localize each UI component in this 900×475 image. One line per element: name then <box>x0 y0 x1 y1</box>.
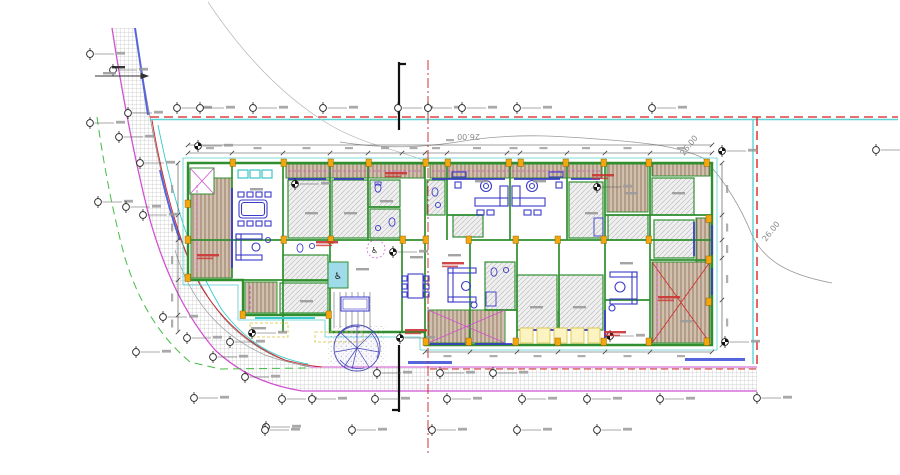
marker-circle <box>174 105 181 112</box>
bath-4 <box>485 262 515 310</box>
marker-elevation-label <box>519 371 528 374</box>
dimension-text <box>171 320 173 328</box>
dimension-text <box>446 139 454 141</box>
marker-elevation-label <box>239 355 248 358</box>
marker-circle <box>279 396 286 403</box>
marker-elevation-label <box>543 106 552 109</box>
bedroom-8 <box>283 255 328 281</box>
label-bar <box>385 172 407 174</box>
survey-marker <box>197 102 235 114</box>
room-label <box>625 192 638 194</box>
marker-circle <box>657 396 664 403</box>
marker-elevation-label <box>224 144 233 147</box>
room-label <box>672 192 685 194</box>
label-bar <box>448 254 461 256</box>
room-label <box>103 72 116 74</box>
marker-circle <box>227 339 234 346</box>
room-label <box>250 188 263 190</box>
bedroom-1 <box>288 180 330 238</box>
label-bar-2 <box>604 335 620 337</box>
room-label <box>475 180 488 182</box>
label-bar-2 <box>658 300 674 302</box>
marker-elevation-label <box>473 397 482 400</box>
label-bar <box>305 212 318 214</box>
marker-elevation-label <box>401 397 410 400</box>
dimension-text <box>171 224 173 232</box>
room-label <box>305 212 318 214</box>
bedroom-10 <box>559 275 603 330</box>
marker-elevation-label <box>403 371 412 374</box>
marker-elevation-label <box>169 213 178 216</box>
column <box>328 159 334 167</box>
label-bar <box>530 306 543 308</box>
veranda-northeast <box>607 164 648 212</box>
label-bar <box>300 300 313 302</box>
label-bar <box>658 296 680 298</box>
marker-elevation-label <box>678 106 687 109</box>
marker-elevation-label <box>426 336 435 339</box>
column <box>555 236 561 244</box>
site-plan-page: 26.0026.0026.00 <box>0 0 900 475</box>
column <box>423 236 429 244</box>
column <box>400 236 406 244</box>
label-bar <box>475 180 488 182</box>
survey-marker <box>514 102 552 114</box>
marker-circle <box>262 427 269 434</box>
marker-circle <box>250 105 257 112</box>
marker-circle <box>95 199 102 206</box>
label-bar <box>442 262 464 264</box>
bedroom-4 <box>652 178 694 215</box>
label-bar <box>344 212 357 214</box>
survey-marker <box>191 392 229 404</box>
dimension-text <box>171 185 173 193</box>
label-bar <box>625 192 638 194</box>
room-label <box>253 327 266 329</box>
dimension-text <box>726 224 728 232</box>
dimension-text <box>677 355 685 357</box>
dimension-text <box>410 147 418 149</box>
marker-circle <box>490 370 497 377</box>
marker-elevation-label <box>686 397 695 400</box>
survey-marker <box>87 117 125 129</box>
survey-marker <box>195 140 233 152</box>
column <box>704 338 710 346</box>
label-bar <box>672 192 685 194</box>
marker-circle <box>320 105 327 112</box>
room-label <box>448 254 461 256</box>
column <box>706 256 712 264</box>
column <box>706 298 712 306</box>
column <box>281 236 287 244</box>
column <box>506 159 512 167</box>
dimension-text <box>677 147 685 149</box>
survey-marker <box>873 144 900 156</box>
dimension-text <box>726 245 728 253</box>
column <box>601 236 607 244</box>
marker-elevation-label <box>636 334 645 337</box>
dimension-text <box>444 355 452 357</box>
marker-elevation-label <box>279 106 288 109</box>
column <box>466 236 472 244</box>
survey-marker <box>444 393 482 405</box>
marker-elevation-label <box>139 68 148 71</box>
dimension-text <box>171 256 173 264</box>
column <box>513 236 519 244</box>
marker-elevation-label <box>748 149 757 152</box>
dimension-text <box>303 147 311 149</box>
tree <box>328 325 386 371</box>
marker-circle <box>133 349 140 356</box>
dimension-text <box>726 319 728 327</box>
marker-elevation-label <box>278 331 287 334</box>
bath-1 <box>370 180 400 207</box>
marker-elevation-label <box>419 250 428 253</box>
survey-marker <box>754 392 792 404</box>
room-label <box>380 200 393 202</box>
marker-elevation-label <box>338 397 347 400</box>
marker-circle <box>519 396 526 403</box>
bath-3 <box>427 180 445 215</box>
survey-marker <box>320 102 358 114</box>
marker-elevation-label <box>154 111 163 114</box>
marker-elevation-label <box>162 350 171 353</box>
survey-marker <box>349 424 387 436</box>
label-bar <box>103 72 116 74</box>
dimension-text <box>540 147 548 149</box>
column <box>518 159 524 167</box>
marker-circle <box>197 105 204 112</box>
dimension-text <box>624 355 632 357</box>
survey-marker <box>519 393 557 405</box>
survey-marker <box>649 102 687 114</box>
label-bar <box>253 327 266 329</box>
column <box>326 311 332 319</box>
bath-5 <box>453 215 483 237</box>
marker-circle <box>137 160 144 167</box>
marker-elevation-label <box>116 121 125 124</box>
label-bar <box>604 331 626 333</box>
marker-circle <box>459 105 466 112</box>
marker-elevation-label <box>613 397 622 400</box>
room-label <box>410 256 423 258</box>
column <box>423 338 429 346</box>
label-bar <box>197 254 219 256</box>
bedroom-9 <box>517 275 557 330</box>
marker-elevation-label <box>321 182 330 185</box>
label-bar <box>316 241 338 243</box>
survey-marker <box>309 393 347 405</box>
label-bar-2 <box>442 266 458 268</box>
column <box>240 311 246 319</box>
room-label <box>112 66 125 68</box>
dimension-text <box>381 147 389 149</box>
marker-circle <box>594 427 601 434</box>
marker-elevation-label <box>116 52 125 55</box>
marker-circle <box>649 105 656 112</box>
marker-circle <box>210 354 217 361</box>
wheelchair-icon-2: ♿ <box>371 246 378 255</box>
veranda-top-b <box>430 164 602 178</box>
column <box>646 236 652 244</box>
marker-elevation-label <box>378 428 387 431</box>
marker-elevation-label <box>291 428 300 431</box>
column <box>185 200 191 208</box>
marker-elevation-label <box>166 161 175 164</box>
dimension-text <box>206 147 214 149</box>
survey-marker <box>429 424 467 436</box>
column <box>555 338 561 346</box>
marker-circle <box>395 105 402 112</box>
column <box>563 159 569 167</box>
marker-circle <box>87 120 94 127</box>
dimension-text <box>432 147 440 149</box>
marker-circle <box>160 314 167 321</box>
marker-circle <box>123 204 130 211</box>
column <box>513 338 519 346</box>
marker-circle <box>140 212 147 219</box>
marker-circle <box>514 427 521 434</box>
survey-marker <box>250 102 288 114</box>
survey-marker <box>425 102 463 114</box>
column <box>445 159 451 167</box>
column <box>706 215 712 223</box>
marker-circle <box>754 395 761 402</box>
marker-elevation-label <box>543 428 552 431</box>
room-label <box>585 212 598 214</box>
bedroom-6 <box>654 220 694 258</box>
label-bar <box>250 188 263 190</box>
dimension-text <box>624 147 632 149</box>
column <box>185 274 191 282</box>
column <box>185 236 191 244</box>
label-bar <box>405 329 427 331</box>
marker-circle <box>309 396 316 403</box>
marker-elevation-label <box>623 428 632 431</box>
column <box>646 338 652 346</box>
marker-elevation-label <box>226 106 235 109</box>
label-bar <box>410 256 423 258</box>
label-bar <box>592 174 614 176</box>
marker-elevation-label <box>548 397 557 400</box>
marker-elevation-label <box>751 340 760 343</box>
veranda-east-strip <box>652 164 710 176</box>
column <box>423 159 429 167</box>
marker-elevation-label <box>124 200 133 203</box>
marker-elevation-label <box>458 428 467 431</box>
column <box>230 159 236 167</box>
dimension-text <box>345 147 353 149</box>
dimension-text <box>578 355 586 357</box>
room-label <box>533 180 546 182</box>
bedroom-2 <box>332 180 368 238</box>
dimension-text <box>582 147 590 149</box>
marker-elevation-label <box>145 135 154 138</box>
label-bar-2 <box>405 333 421 335</box>
contour-elevation-label: 26.00 <box>457 132 480 141</box>
label-bar-2 <box>592 178 608 180</box>
marker-circle <box>374 370 381 377</box>
marker-circle <box>242 374 249 381</box>
room-label <box>344 212 357 214</box>
dimension-text <box>473 147 481 149</box>
survey-marker <box>719 145 757 157</box>
room-label <box>300 300 313 302</box>
room-label <box>573 306 586 308</box>
label-bar-2 <box>385 176 401 178</box>
column <box>646 159 652 167</box>
dimension-text <box>726 185 728 193</box>
room-label <box>680 320 693 322</box>
dimension-text <box>490 355 498 357</box>
survey-marker <box>722 336 760 348</box>
label-bar-2 <box>197 258 213 260</box>
marker-elevation-label <box>783 396 792 399</box>
dimension-text <box>726 275 728 283</box>
marker-elevation-label <box>488 106 497 109</box>
marker-circle <box>349 427 356 434</box>
marker-circle <box>191 395 198 402</box>
bedroom-5 <box>608 215 648 240</box>
dimension-text <box>254 147 262 149</box>
marker-elevation-label <box>152 205 161 208</box>
room-label <box>620 262 633 264</box>
marker-circle <box>125 110 132 117</box>
contour-2 <box>703 158 832 283</box>
marker-elevation-label <box>349 106 358 109</box>
marker-circle <box>372 396 379 403</box>
marker-circle <box>444 396 451 403</box>
survey-marker <box>657 393 695 405</box>
marker-circle <box>425 105 432 112</box>
marker-circle <box>116 134 123 141</box>
wheelchair-icon: ♿ <box>334 272 342 282</box>
marker-circle <box>584 396 591 403</box>
column <box>704 159 710 167</box>
marker-circle <box>429 427 436 434</box>
label-bar <box>380 200 393 202</box>
contour-elevation-label: 26.00 <box>678 134 699 158</box>
bath-2 <box>370 209 400 238</box>
marker-elevation-label <box>189 315 198 318</box>
marker-circle <box>437 370 444 377</box>
marker-elevation-label <box>623 185 632 188</box>
column <box>601 338 607 346</box>
marker-circle <box>873 147 880 154</box>
marker-elevation-label <box>292 425 301 428</box>
column <box>366 159 372 167</box>
dimension-text <box>171 294 173 302</box>
survey-marker <box>514 424 552 436</box>
label-bar <box>573 306 586 308</box>
room-label <box>356 268 369 270</box>
marker-elevation-label <box>256 340 265 343</box>
bedroom-7 <box>280 283 328 313</box>
label-bar <box>620 262 633 264</box>
marker-elevation-label <box>213 336 222 339</box>
marker-circle <box>514 105 521 112</box>
marker-elevation-label <box>220 396 229 399</box>
contour-elevation-label: 26.00 <box>760 220 781 244</box>
survey-marker <box>459 102 497 114</box>
survey-marker <box>584 393 622 405</box>
marker-circle <box>184 335 191 342</box>
column <box>281 159 287 167</box>
dimension-text <box>510 147 518 149</box>
label-bar <box>585 212 598 214</box>
label-bar <box>533 180 546 182</box>
marker-circle <box>87 51 94 58</box>
marker-elevation-label <box>271 375 280 378</box>
site-plan-drawing: 26.0026.0026.00 <box>0 0 900 475</box>
label-bar <box>112 66 125 68</box>
survey-marker <box>372 393 410 405</box>
dimension-text <box>534 355 542 357</box>
survey-marker <box>594 424 632 436</box>
column <box>466 338 472 346</box>
shaft <box>190 168 214 194</box>
room-label <box>530 306 543 308</box>
label-bar <box>680 320 693 322</box>
marker-elevation-label <box>466 371 475 374</box>
survey-marker <box>133 346 171 358</box>
label-bar-2 <box>316 245 332 247</box>
column <box>601 159 607 167</box>
label-bar <box>356 268 369 270</box>
